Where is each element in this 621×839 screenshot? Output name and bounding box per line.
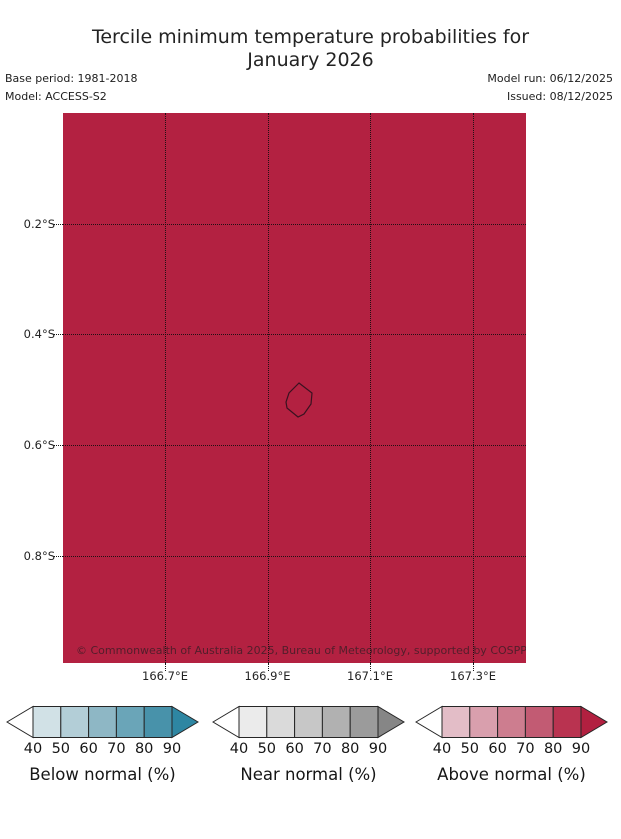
colorbar-tick-60: 60 [280,741,310,757]
colorbar-below-normal-bar [5,705,205,739]
ytick-label-0_6S: 0.6°S [0,438,55,452]
colorbar-below-normal-label: Below normal (%) [5,765,200,784]
model-text: Model: ACCESS-S2 [5,88,137,106]
colorbar-tick-90: 90 [363,741,393,757]
ytick-label-0_4S: 0.4°S [0,327,55,341]
colorbar-tick-40: 40 [224,741,254,757]
colorbar-near-normal-bar [211,705,411,739]
colorbar-below-normal: 405060708090 Below normal (%) [5,705,205,795]
xtick-label-166_9E: 166.9°E [245,669,291,683]
colorbar-tick-70: 70 [307,741,337,757]
colorbar-tick-60: 60 [483,741,513,757]
colorbar-tick-60: 60 [74,741,104,757]
colorbar-tick-80: 80 [129,741,159,757]
colorbar-tick-40: 40 [18,741,48,757]
colorbar-near-normal-label: Near normal (%) [211,765,406,784]
header-meta-right: Model run: 06/12/2025 Issued: 08/12/2025 [487,70,613,106]
colorbar-tick-80: 80 [538,741,568,757]
colorbar-tick-90: 90 [566,741,596,757]
chart-title: Tercile minimum temperature probabilitie… [0,26,621,72]
colorbar-above-normal-bar [414,705,614,739]
colorbar-above-normal: 405060708090 Above normal (%) [414,705,614,795]
chart-title-line2: January 2026 [0,49,621,72]
nauru-island-outline [63,113,526,663]
copyright-text: © Commonwealth of Australia 2025, Bureau… [76,644,526,657]
colorbar-tick-50: 50 [455,741,485,757]
nauru-polygon [286,383,312,417]
model-run-text: Model run: 06/12/2025 [487,70,613,88]
ytick-label-0_2S: 0.2°S [0,217,55,231]
colorbar-tick-80: 80 [335,741,365,757]
map-canvas: © Commonwealth of Australia 2025, Bureau… [63,113,526,663]
xtick-label-166_7E: 166.7°E [142,669,188,683]
xtick-label-167_1E: 167.1°E [347,669,393,683]
ytick-mark-0_2S [54,224,63,225]
colorbar-tick-50: 50 [46,741,76,757]
ytick-mark-0_8S [54,556,63,557]
figure: Tercile minimum temperature probabilitie… [0,0,621,839]
colorbar-tick-70: 70 [101,741,131,757]
base-period-text: Base period: 1981-2018 [5,70,137,88]
colorbar-tick-40: 40 [427,741,457,757]
colorbar-tick-50: 50 [252,741,282,757]
header-meta-left: Base period: 1981-2018 Model: ACCESS-S2 [5,70,137,106]
xtick-label-167_3E: 167.3°E [450,669,496,683]
colorbar-near-normal: 405060708090 Near normal (%) [211,705,411,795]
ytick-mark-0_6S [54,445,63,446]
ytick-mark-0_4S [54,334,63,335]
colorbar-above-normal-label: Above normal (%) [414,765,609,784]
colorbar-tick-90: 90 [157,741,187,757]
issued-text: Issued: 08/12/2025 [487,88,613,106]
colorbar-tick-70: 70 [510,741,540,757]
chart-title-line1: Tercile minimum temperature probabilitie… [0,26,621,49]
ytick-label-0_8S: 0.8°S [0,549,55,563]
